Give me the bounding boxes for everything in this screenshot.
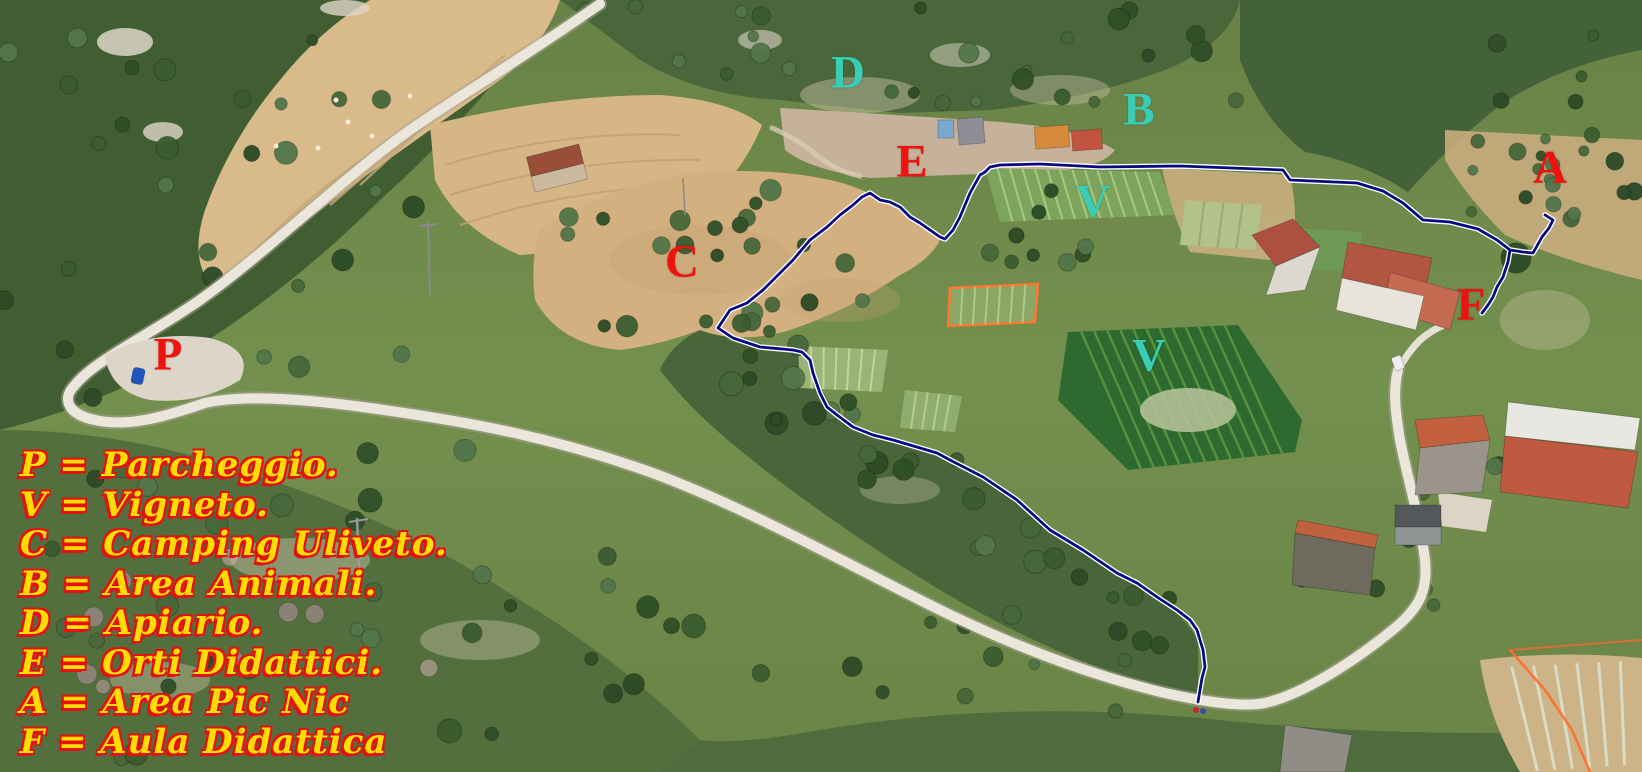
map-marker-a: A <box>1533 145 1567 192</box>
legend-item-area-animali: B = Area Animali. <box>20 565 448 605</box>
boundary-line <box>1482 250 1510 313</box>
legend-item-parcheggio: P = Parcheggio. <box>20 446 448 486</box>
map-marker-v-upper: V <box>1076 179 1110 226</box>
legend: P = Parcheggio. V = Vigneto. C = Camping… <box>20 446 448 762</box>
map-marker-b: B <box>1123 87 1154 134</box>
map-marker-v-lower: V <box>1132 333 1166 380</box>
legend-item-vigneto: V = Vigneto. <box>20 486 448 526</box>
map-marker-c: C <box>665 239 699 286</box>
map-marker-e: E <box>896 139 927 186</box>
boundary-line <box>718 164 1553 702</box>
legend-item-apiario: D = Apiario. <box>20 604 448 644</box>
legend-item-orti-didattici: E = Orti Didattici. <box>20 644 448 684</box>
annotated-aerial-map: D B E V A C F P V P = Parcheggio. V = Vi… <box>0 0 1642 772</box>
map-marker-f: F <box>1457 282 1486 329</box>
map-marker-d: D <box>831 50 865 97</box>
legend-item-aula-didattica: F = Aula Didattica <box>20 723 448 763</box>
legend-item-area-pic-nic: A = Area Pic Nic <box>20 683 448 723</box>
map-marker-p: P <box>154 332 183 379</box>
boundary-line <box>718 164 1553 702</box>
legend-item-camping-uliveto: C = Camping Uliveto. <box>20 525 448 565</box>
